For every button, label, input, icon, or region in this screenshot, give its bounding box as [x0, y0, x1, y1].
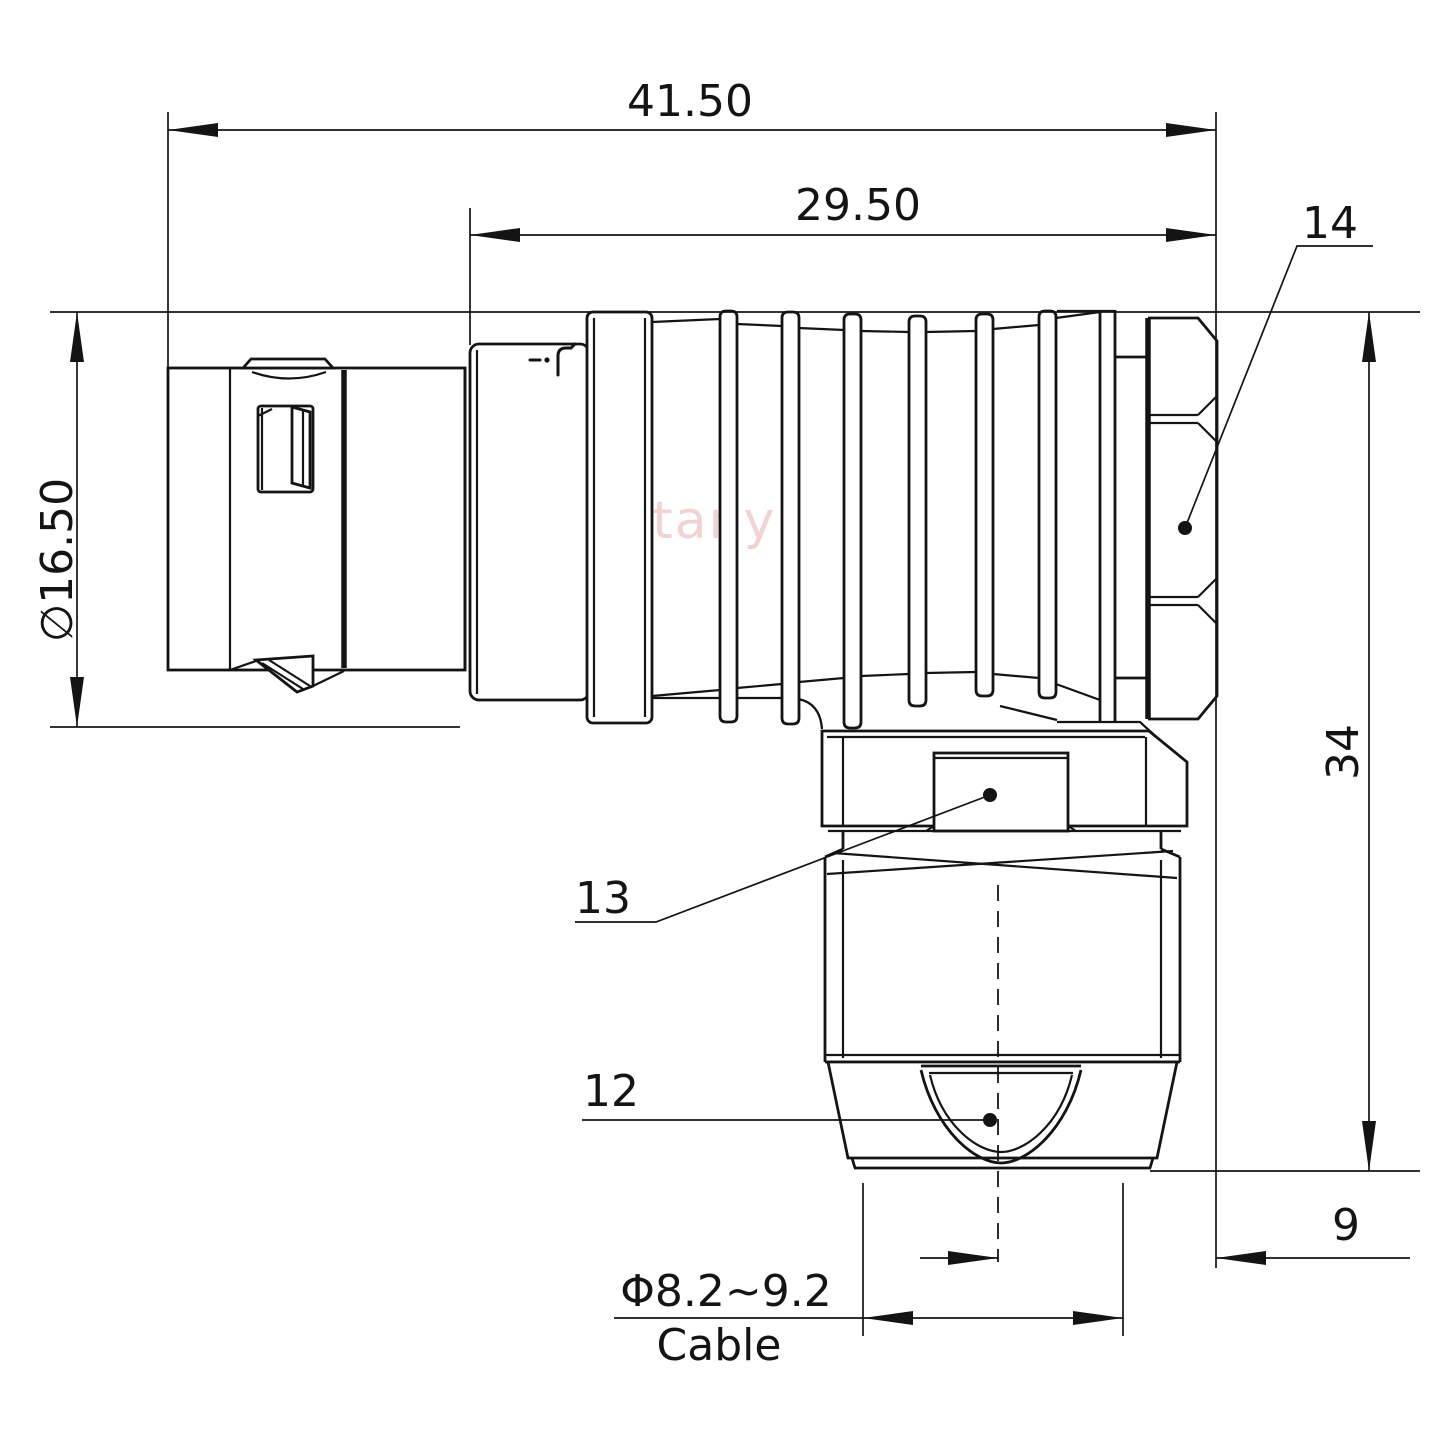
dim-text-cable-diameter: Φ8.2~9.2 — [620, 1266, 831, 1317]
arrowhead — [470, 228, 520, 242]
connector-dimension-drawing: Lightany — [0, 0, 1440, 1440]
neck-edges — [1115, 357, 1146, 678]
rib — [909, 316, 926, 706]
collar-ring — [587, 312, 652, 723]
arrowhead — [1166, 123, 1216, 137]
dim-text-front-length: 29.50 — [795, 180, 921, 231]
cable-nut — [825, 831, 1180, 1062]
rib — [720, 311, 737, 722]
arrowhead — [948, 1251, 998, 1265]
housing-body — [470, 344, 589, 700]
leader-dot — [1178, 521, 1192, 535]
arrowhead — [1362, 1121, 1376, 1171]
technical-drawing-page: Lightany — [0, 0, 1440, 1440]
rear-shell — [168, 359, 465, 692]
arrowhead — [1216, 1251, 1266, 1265]
fillet-left — [798, 699, 822, 729]
leader-dot — [983, 788, 997, 802]
main-housing — [470, 344, 589, 700]
arrowhead — [1362, 312, 1376, 362]
dim-cable-offset: 9 — [920, 1200, 1410, 1265]
rear-shell-body — [168, 368, 465, 670]
dim-text-cable-label: Cable — [657, 1320, 782, 1371]
cone-body — [828, 1062, 1177, 1158]
dim-text-overall-length: 41.50 — [627, 76, 753, 127]
nut-fill — [827, 833, 1178, 1060]
dim-text-cable-offset: 9 — [1332, 1200, 1360, 1251]
label-text-gland: 13 — [575, 873, 631, 924]
rib — [844, 314, 861, 728]
dim-text-height: 34 — [1318, 724, 1369, 780]
coupling-collar — [1057, 310, 1146, 723]
cable-collet-cone — [828, 1062, 1177, 1168]
top-tab — [243, 359, 333, 368]
strain-relief — [652, 311, 1100, 728]
rib — [976, 314, 993, 696]
dim-text-body-diameter: ∅16.50 — [32, 478, 83, 642]
arrowhead — [168, 123, 218, 137]
label-text-collet: 12 — [583, 1066, 639, 1117]
arrowhead — [1073, 1311, 1123, 1325]
dim-cable-diameter: Φ8.2~9.2 Cable — [614, 1183, 1123, 1371]
collar-body — [587, 312, 652, 723]
leader-dot — [983, 1113, 997, 1127]
gland-flat-face — [934, 753, 1068, 831]
rib — [782, 312, 799, 724]
arrowhead — [70, 312, 84, 362]
band-edges — [1057, 311, 1115, 722]
bayonet-pin — [292, 407, 310, 488]
hex-fill — [1150, 318, 1217, 719]
bayonet-slot — [256, 656, 313, 692]
label-text-backnut: 14 — [1302, 198, 1358, 249]
arrowhead — [70, 677, 84, 727]
hex-nut — [1148, 318, 1217, 719]
arrowhead — [1166, 228, 1216, 242]
rib — [1039, 311, 1056, 698]
arrowhead — [863, 1311, 913, 1325]
